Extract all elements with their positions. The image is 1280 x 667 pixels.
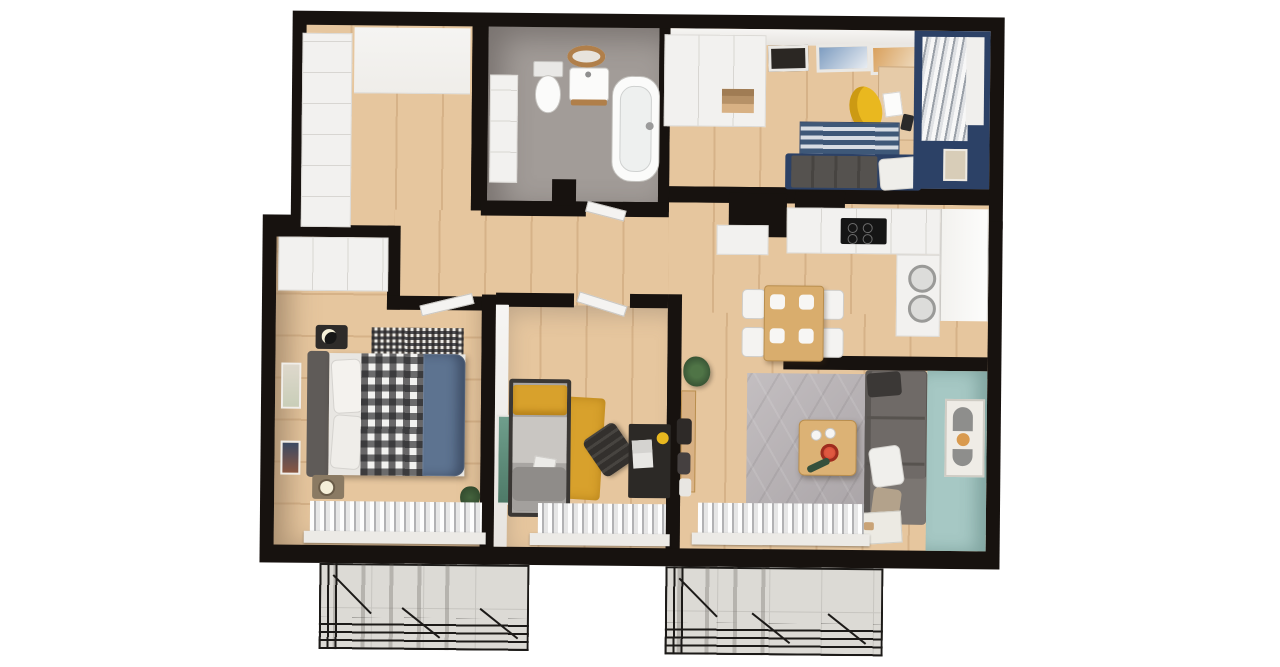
dining-chair-1 bbox=[742, 289, 766, 319]
master-window-sill bbox=[304, 531, 486, 545]
coffee-cup-1 bbox=[811, 430, 822, 441]
washer bbox=[908, 265, 936, 293]
kids-window-sill bbox=[530, 533, 670, 546]
kids-pillow-mustard bbox=[513, 385, 567, 416]
master-window-curtain bbox=[310, 501, 482, 535]
bathtub-faucet bbox=[646, 122, 654, 130]
laptop bbox=[632, 439, 654, 468]
vanity-faucet bbox=[585, 71, 591, 77]
dining-chair-2 bbox=[741, 327, 765, 357]
place-setting-3 bbox=[770, 328, 785, 343]
master-pillow-2 bbox=[330, 414, 364, 470]
floor-plan-render bbox=[0, 0, 1280, 667]
bathroom-cabinet bbox=[489, 75, 518, 183]
cooktop-burner-1 bbox=[848, 223, 858, 233]
living-window-sill bbox=[692, 533, 870, 547]
master-wardrobe bbox=[278, 237, 389, 292]
wall-entry-bathroom bbox=[471, 26, 489, 210]
cooktop-burner-4 bbox=[863, 234, 873, 244]
coffee-cup-2 bbox=[825, 428, 836, 439]
poster-circle bbox=[957, 433, 970, 446]
navy-duvet bbox=[422, 354, 465, 476]
coat-hanging-dark bbox=[677, 418, 692, 444]
place-setting-1 bbox=[770, 294, 785, 309]
dryer bbox=[908, 295, 936, 323]
doormat-item bbox=[864, 522, 874, 530]
place-setting-2 bbox=[799, 295, 814, 310]
daybed-cushions bbox=[791, 155, 877, 188]
sofa-cushion-seam-1 bbox=[867, 416, 925, 420]
sofa-pillow bbox=[868, 444, 906, 488]
desk-lamp bbox=[657, 432, 669, 444]
master-wall-art-2 bbox=[280, 441, 300, 475]
gallery-frame-1 bbox=[768, 45, 809, 72]
office-window-curtain bbox=[922, 37, 969, 141]
entry-door-zone bbox=[354, 27, 471, 94]
coat-hanging-light bbox=[679, 478, 691, 496]
apartment-plan bbox=[0, 0, 1280, 667]
office-window-column bbox=[966, 37, 985, 125]
kitchen-cabinet-left bbox=[716, 225, 768, 255]
potted-plant bbox=[683, 356, 710, 386]
toilet-bowl bbox=[535, 75, 561, 113]
office-desk-paper bbox=[882, 91, 903, 117]
place-setting-4 bbox=[799, 329, 814, 344]
master-wall-art-1 bbox=[281, 363, 301, 409]
wall-kids-top-right bbox=[630, 294, 668, 308]
office-wardrobe-niche bbox=[722, 89, 754, 113]
sofa-dark-blanket bbox=[866, 371, 902, 398]
navy-wall-frame bbox=[943, 149, 967, 181]
bedside-lamp-top bbox=[322, 329, 337, 344]
wall-stub-bathroom-door bbox=[552, 179, 576, 205]
poster-arch-top bbox=[953, 407, 973, 431]
wall-bathroom-bottom-right bbox=[623, 202, 669, 217]
master-pillow-1 bbox=[331, 358, 364, 414]
cooktop-burner-2 bbox=[863, 223, 873, 233]
living-window-curtain bbox=[698, 503, 864, 537]
kitchen-window bbox=[940, 209, 989, 321]
bedside-lamp-bottom bbox=[318, 479, 335, 496]
cooktop-burner-3 bbox=[848, 234, 858, 244]
gallery-frame-2 bbox=[816, 43, 871, 72]
vanity-mirror bbox=[567, 45, 605, 67]
vanity-shelf bbox=[571, 99, 607, 105]
master-headboard bbox=[306, 351, 329, 477]
balcony-right-railing-front bbox=[665, 622, 883, 656]
plaid-blanket bbox=[360, 353, 427, 476]
entry-wardrobe bbox=[301, 33, 353, 227]
coat-hanging-gray bbox=[677, 452, 690, 474]
office-wardrobe bbox=[664, 34, 767, 127]
kids-window-curtain bbox=[538, 503, 666, 536]
